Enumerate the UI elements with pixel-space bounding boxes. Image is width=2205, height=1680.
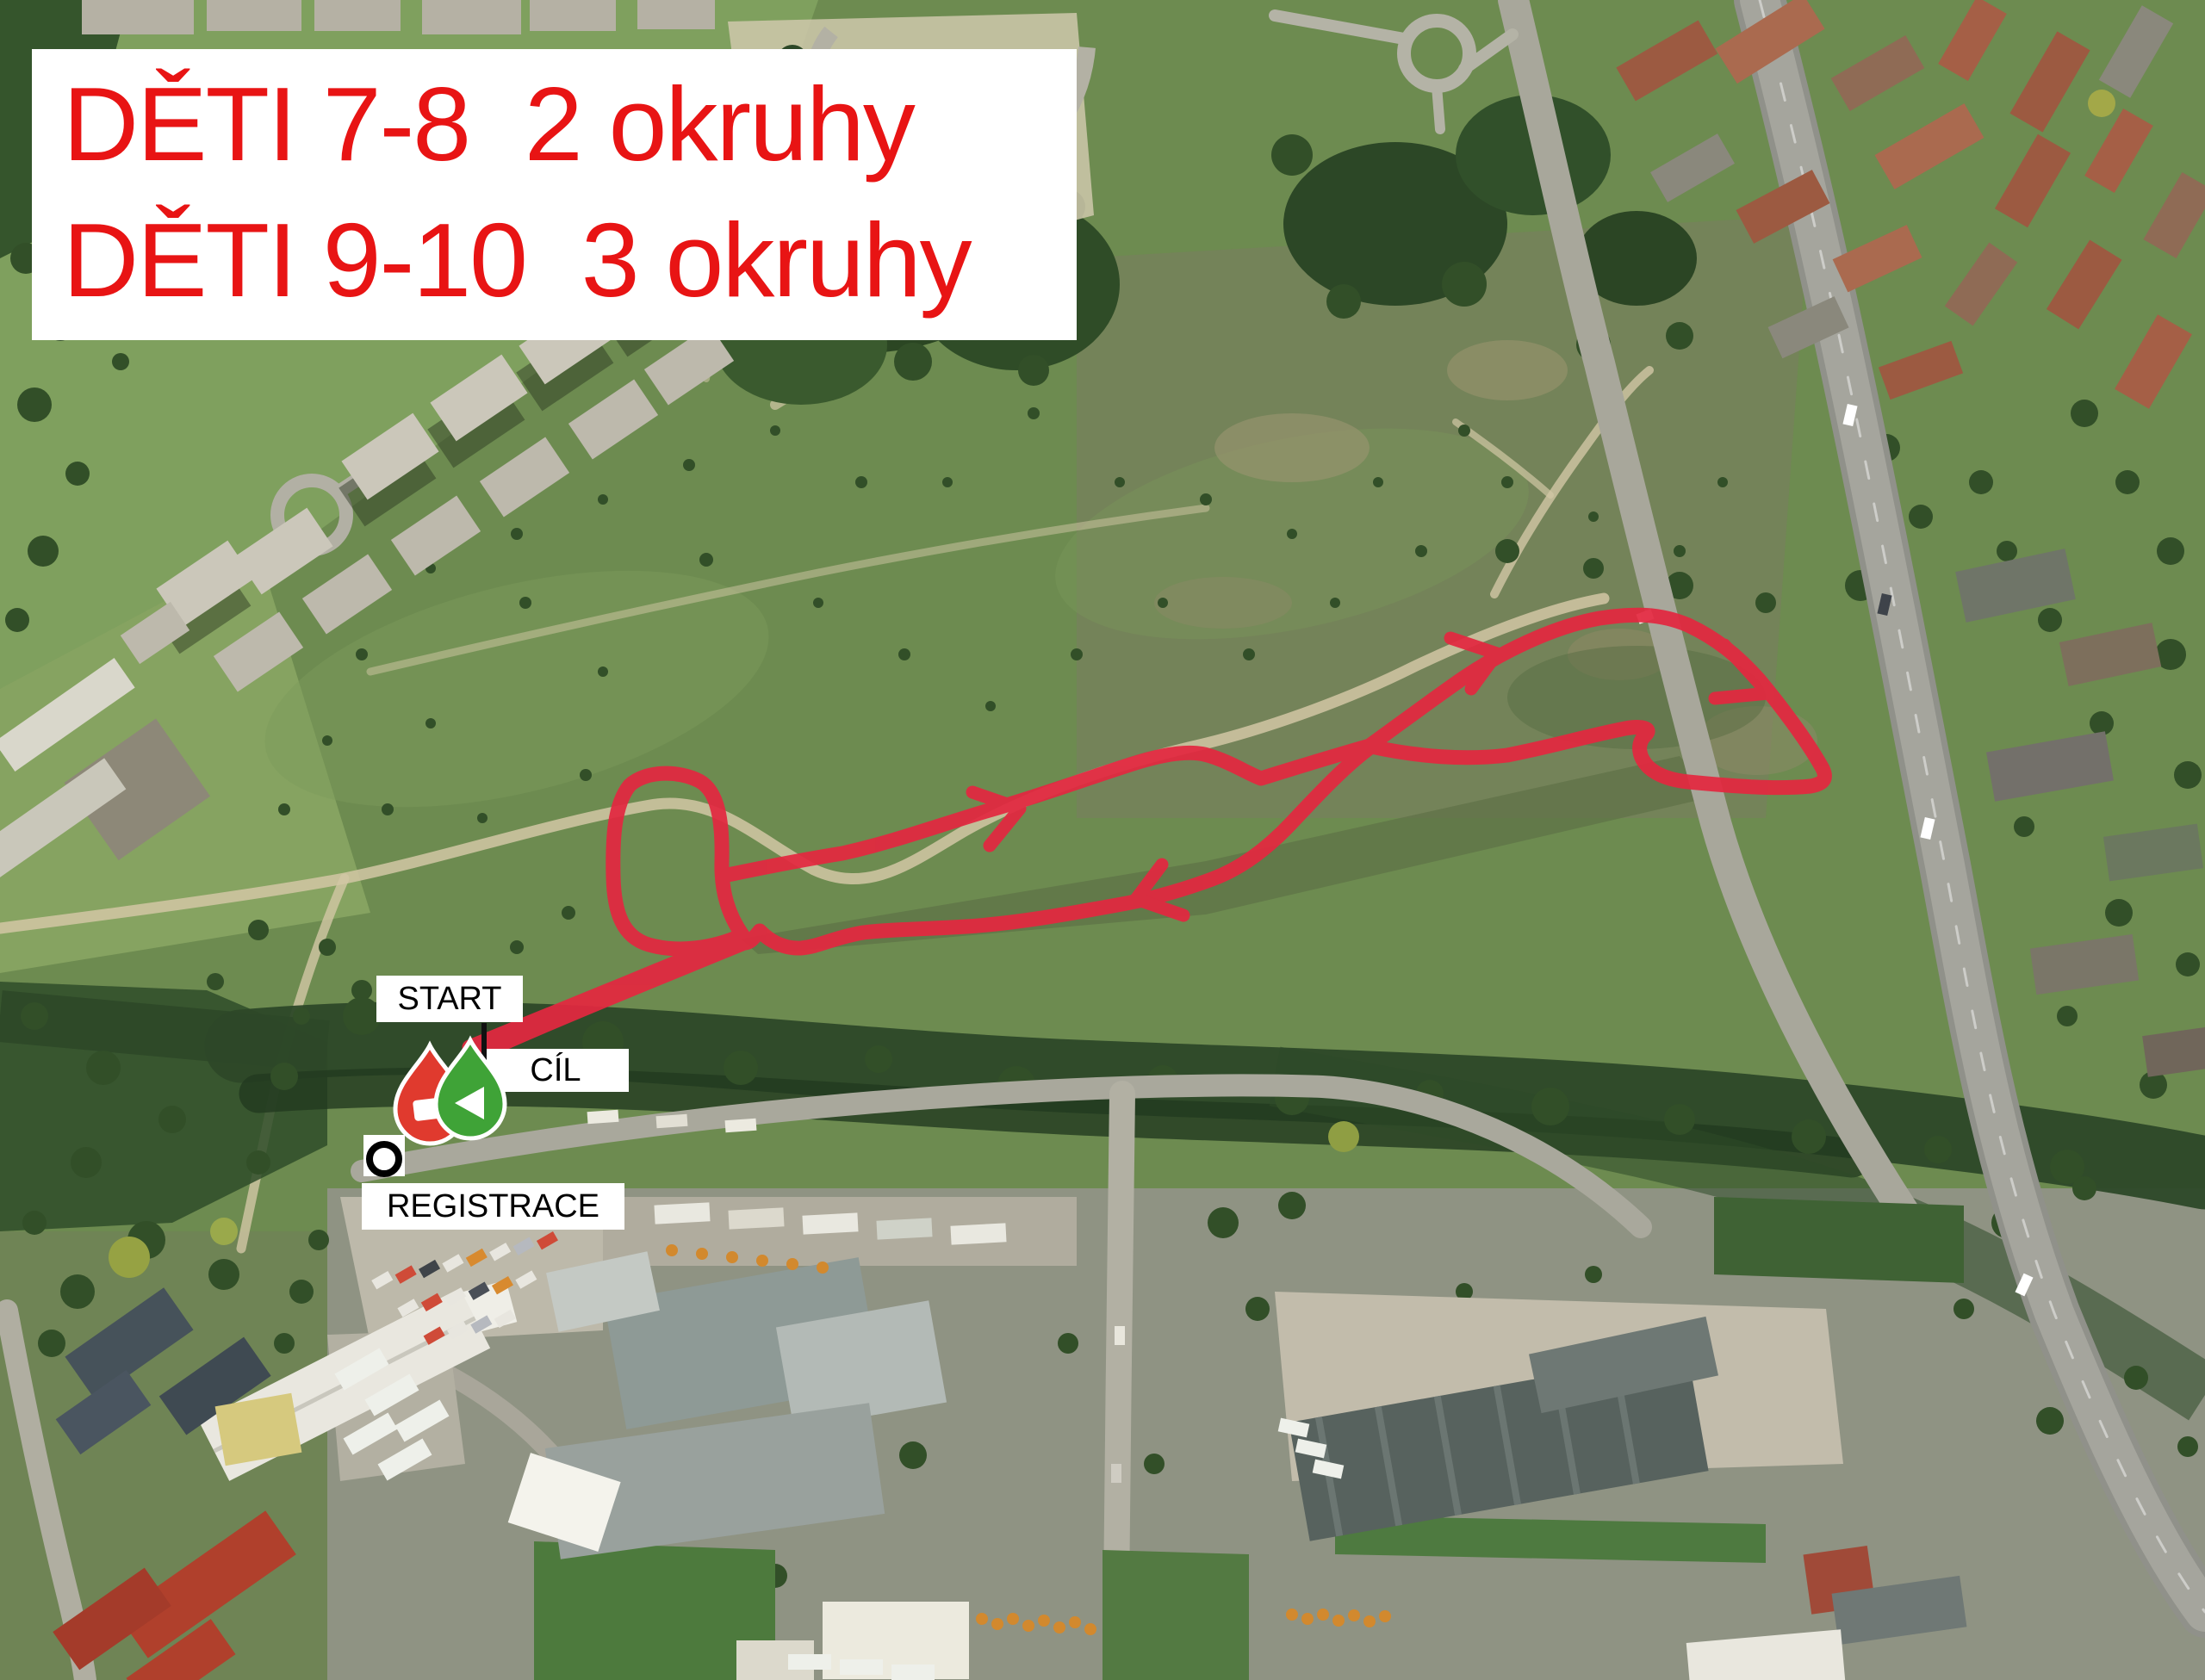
race-course-map: START CÍL REGISTRACE DĚTI 7-8 2 okruhy D… xyxy=(0,0,2205,1680)
finish-label: CÍL xyxy=(482,1049,629,1092)
registration-circle-icon xyxy=(366,1141,402,1177)
title-box: DĚTI 7-8 2 okruhy DĚTI 9-10 3 okruhy xyxy=(32,49,1077,340)
registration-label: REGISTRACE xyxy=(362,1183,624,1230)
title-line-2: DĚTI 9-10 3 okruhy xyxy=(63,192,1077,328)
title-line-1: DĚTI 7-8 2 okruhy xyxy=(63,56,1077,192)
registration-icon-box xyxy=(363,1135,405,1176)
start-label: START xyxy=(376,976,523,1022)
